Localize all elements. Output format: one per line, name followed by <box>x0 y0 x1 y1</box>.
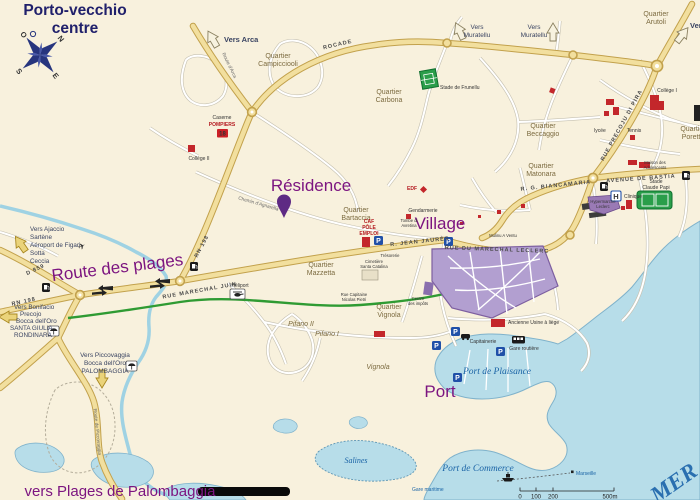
quartier-carbona-l2: Carbona <box>376 97 403 104</box>
usine-label: Ancienne Usine à liège <box>508 320 559 326</box>
quartier-poretta-l1: Quartier <box>680 126 700 133</box>
parking-icon: P <box>453 329 458 336</box>
vers-ajaccio-3: Aéroport de Figari <box>30 242 80 249</box>
port-plaisance-label: Port de Plaisance <box>462 367 531 377</box>
vignola-label: Vignola <box>366 364 389 371</box>
quartier-beccaggio-l1: Quartier <box>530 123 556 130</box>
residence-label: Résidence <box>271 176 351 195</box>
stade-claude-papi <box>637 191 672 209</box>
gare-routiere-label: Gare routière <box>509 346 539 352</box>
quartier-mazzetta-l2: Mazzetta <box>307 270 336 277</box>
heliport-label: Héliport <box>231 283 249 289</box>
svg-text:18: 18 <box>219 132 226 138</box>
quartier-matonara-l1: Quartier <box>528 163 554 170</box>
caserne-label-l2: POMPIERS <box>209 122 236 128</box>
caf-building <box>362 237 370 247</box>
scale-500m: 500m <box>602 495 617 500</box>
tennis-building <box>630 135 635 140</box>
college1-label: Collège I <box>657 88 677 94</box>
quartier-campicciooli-l1: Quartier <box>265 53 291 60</box>
quartier-poretta-l2: Poretta <box>682 134 700 141</box>
caserne-label-l1: Caserne <box>213 115 232 121</box>
hyper-label-l2: Leclerc <box>596 204 610 209</box>
vers-piccovaggia-3: PALOMBAGGIA <box>81 368 129 375</box>
scale-100: 100 <box>531 495 542 500</box>
pond-vignola <box>273 419 297 433</box>
vers-piccovaggia-2: Bocca dell'Oro <box>84 360 126 367</box>
cimetiere-label-l2: Santa Catalina <box>360 264 388 269</box>
quartier-arutoli-l1: Quartier <box>643 11 669 18</box>
tombe-label-l2: Avretina <box>401 223 417 228</box>
caf-label-l3: EMPLOI <box>359 231 379 237</box>
parking-icon: P <box>498 349 503 356</box>
marseille-label: Marseille <box>576 471 596 477</box>
caf-label-l2: PÔLE <box>362 223 376 231</box>
village-label: Village <box>415 214 466 233</box>
church-building <box>423 282 434 296</box>
vers-arca-label: Vers Arca <box>224 35 259 44</box>
gendarmerie-label: Gendarmerie <box>408 208 437 214</box>
vers-piccovaggia-1: Vers Piccovaggia <box>80 352 130 359</box>
quartier-arutoli-l2: Arutoli <box>646 19 666 26</box>
capitainerie-label: Capitainerie <box>470 339 497 345</box>
page-title-line2: centre <box>52 20 99 37</box>
vers-bonifacio-3: Bocca dell'Oro <box>16 318 57 325</box>
stade-frunellu <box>420 69 439 90</box>
papi-label-l2: Claude Papi <box>642 185 669 191</box>
port-commerce-label: Port de Commerce <box>441 464 513 474</box>
quartier-bartaccia-l1: Quartier <box>343 207 369 214</box>
mulinu-label: Mulinu A Ventu <box>489 233 517 238</box>
quartier-beccaggio-l2: Beccaggio <box>527 131 560 138</box>
building-dark-edge <box>694 105 700 121</box>
marseille-dot <box>571 471 574 474</box>
quartier-vignola-l1: Quartier <box>376 304 402 311</box>
vers-bonifacio-4: SANTA GIULIA <box>10 325 53 332</box>
vers-ajaccio-4: Sotta <box>30 250 45 257</box>
fire-station-icon: 18 <box>217 129 228 138</box>
quartier-mazzetta-l1: Quartier <box>308 262 334 269</box>
map-screenshot: N S E O P P P <box>0 0 700 500</box>
impots-label-l2: des impôts <box>408 301 428 306</box>
lycee-label: lycée <box>594 128 606 134</box>
pifano2-label: Pifano II <box>288 321 314 328</box>
vers-ajaccio-1: Vers Ajaccio <box>30 226 65 233</box>
pifano1-label: Pifano I <box>315 331 339 338</box>
vers-ne-label: Vers <box>690 21 700 30</box>
parking-icon: P <box>455 375 460 382</box>
cemetery-area <box>362 270 378 280</box>
parking-icon: P <box>376 238 381 245</box>
vers-bonifacio-5: RONDINARA <box>14 332 53 339</box>
vers-muratellu1-l1: Vers <box>470 24 484 31</box>
quartier-matonara-l2: Matonara <box>526 171 556 178</box>
market-building <box>374 331 385 337</box>
usine-liege-building <box>491 319 505 327</box>
vers-muratellu2-l2: Muratellu <box>521 32 548 39</box>
tennis-label: Tennis <box>627 128 642 134</box>
vers-bonifacio-2: Precojo <box>20 311 42 318</box>
capitaine-label-l2: Nicolas Pietri <box>342 297 367 302</box>
frunellu-label: Stade de Frunellu <box>440 85 480 91</box>
quartier-carbona-l1: Quartier <box>376 89 402 96</box>
scale-200: 200 <box>548 495 559 500</box>
vers-muratellu1-l2: Muratellu <box>464 32 491 39</box>
quartier-campicciooli-l2: Campicciooli <box>258 61 298 68</box>
vers-palombaggia-label: vers Plages de Palombaggia <box>25 483 217 500</box>
port-label: Port <box>424 382 455 401</box>
clinique-label: Clinique <box>624 194 642 200</box>
edf-label: EDF <box>407 186 417 192</box>
vers-ajaccio-2: Sartène <box>30 234 53 241</box>
page-title-line1: Porto-vecchio <box>23 2 126 19</box>
quartier-vignola-l2: Vignola <box>377 312 400 319</box>
tresorerie-label: Trésorerie <box>381 253 401 258</box>
vers-muratellu2-l1: Vers <box>527 24 541 31</box>
salines-label: Salines <box>344 456 367 465</box>
gare-maritime-label: Gare maritime <box>412 487 444 493</box>
bus-icon <box>512 336 525 344</box>
parking-icon: P <box>434 343 439 350</box>
college2-building <box>188 145 195 152</box>
maison-label-l2: Adolescents <box>644 165 667 170</box>
heliport-icon <box>230 289 245 299</box>
porto-vecchio-map: N S E O P P P <box>0 0 700 500</box>
college2-label: Collège II <box>188 156 209 162</box>
pond-small <box>349 417 367 429</box>
